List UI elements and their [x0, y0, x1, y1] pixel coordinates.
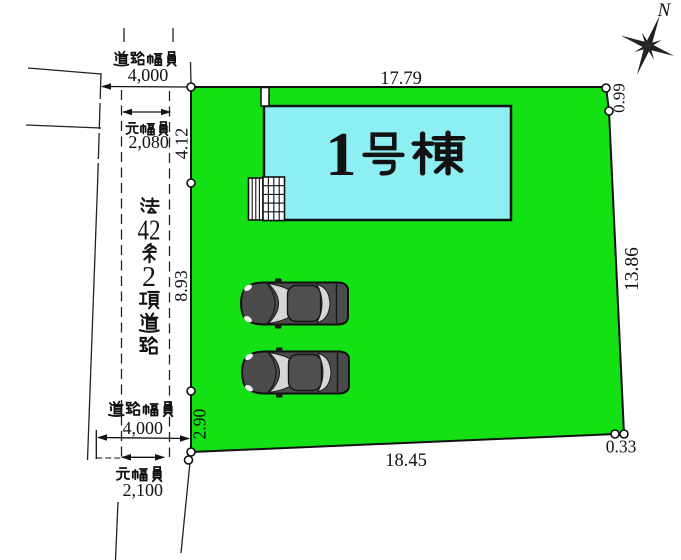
- svg-text:18.45: 18.45: [385, 451, 427, 471]
- svg-text:2.90: 2.90: [190, 408, 210, 439]
- svg-text:42: 42: [138, 216, 161, 247]
- svg-text:4.12: 4.12: [172, 128, 192, 160]
- svg-text:2,080: 2,080: [128, 132, 169, 152]
- svg-text:4,000: 4,000: [123, 418, 164, 438]
- svg-text:0.33: 0.33: [606, 437, 637, 457]
- svg-text:4,000: 4,000: [128, 65, 169, 85]
- svg-text:N: N: [657, 0, 672, 21]
- svg-text:2,100: 2,100: [123, 480, 164, 500]
- svg-text:2: 2: [142, 262, 156, 293]
- svg-text:13.86: 13.86: [622, 247, 643, 291]
- svg-text:1: 1: [326, 121, 357, 189]
- svg-text:8.93: 8.93: [171, 270, 191, 302]
- svg-text:17.79: 17.79: [380, 69, 422, 89]
